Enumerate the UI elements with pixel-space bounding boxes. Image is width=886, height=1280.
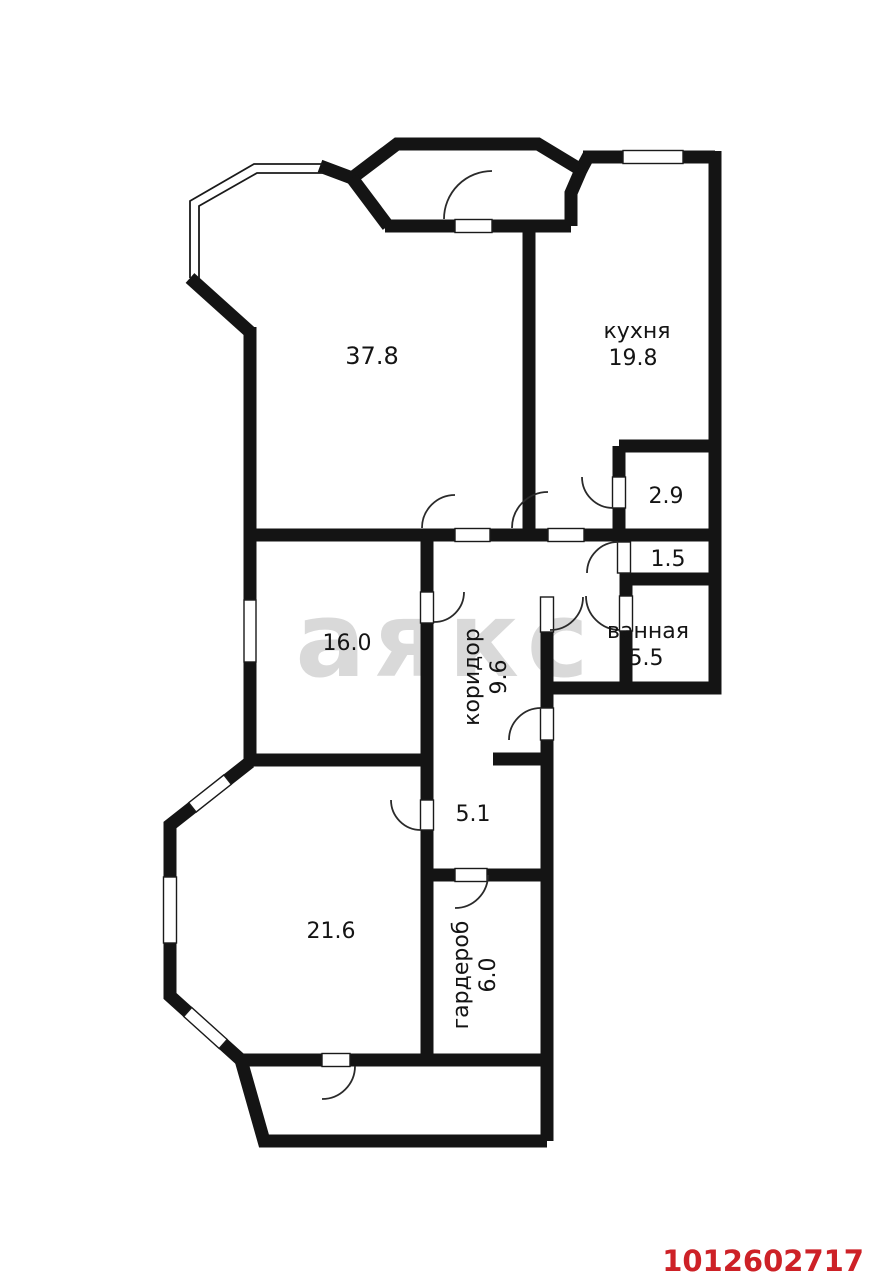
- door-opening-kitchen: [548, 529, 584, 542]
- room-label-corridor-name: коридор: [460, 628, 485, 726]
- floor-plan-page: аякс: [0, 0, 886, 1280]
- door-opening-wardrobe: [455, 869, 487, 882]
- floor-plan-canvas: аякс: [0, 0, 886, 1280]
- window-room16: [244, 600, 256, 662]
- window-kitchen: [623, 151, 683, 164]
- door-opening-entry: [322, 1054, 350, 1067]
- room-label-living-area: 37.8: [345, 342, 398, 370]
- room-label-kitchen-area: 19.8: [609, 346, 658, 371]
- door-opening-room21: [421, 800, 434, 830]
- room-label-pantry-area: 2.9: [649, 484, 684, 509]
- door-opening-balcony: [455, 220, 492, 233]
- room-label-kitchen-name: кухня: [604, 319, 671, 344]
- door-opening-living: [455, 529, 490, 542]
- listing-id-stamp: 1012602717: [662, 1244, 864, 1278]
- room-label-hall-area: 5.1: [456, 802, 491, 827]
- door-opening-vestibule: [541, 597, 554, 632]
- room-label-bathroom-area: 5.5: [629, 646, 664, 671]
- door-opening-pantry: [613, 477, 626, 508]
- room-label-wc-area: 1.5: [651, 547, 686, 572]
- room-label-corridor-area: 9.6: [487, 660, 512, 695]
- room-label-wardrobe-area: 6.0: [476, 958, 501, 993]
- room-label-bedroom2-area: 21.6: [307, 919, 356, 944]
- door-opening-corridor-lower: [541, 708, 554, 740]
- room-label-wardrobe-name: гардероб: [449, 921, 474, 1030]
- room-label-bedroom-area: 16.0: [323, 631, 372, 656]
- door-opening-room16: [421, 592, 434, 623]
- window-room21-left: [164, 877, 177, 943]
- room-label-bathroom-name: ванная: [607, 619, 689, 644]
- door-opening-wc: [618, 542, 631, 573]
